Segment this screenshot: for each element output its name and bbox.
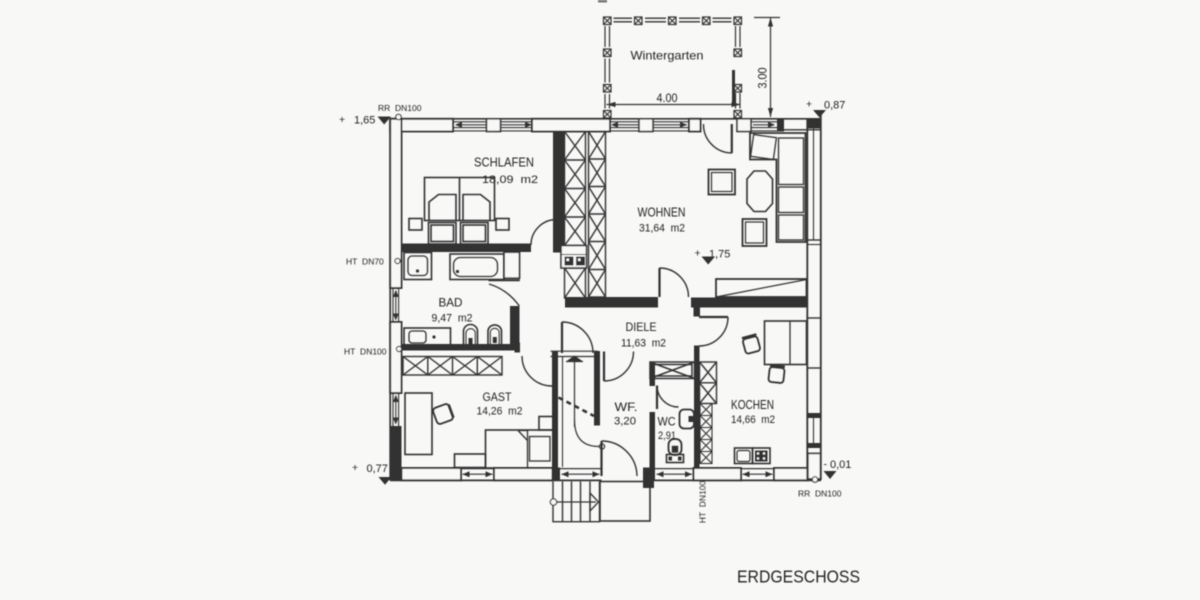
svg-text:11,63 m2: 11,63 m2: [621, 338, 666, 350]
svg-text:HT DN70: HT DN70: [346, 257, 384, 267]
svg-text:WOHNEN: WOHNEN: [638, 206, 686, 220]
svg-text:ERDGESCHOSS: ERDGESCHOSS: [737, 567, 860, 587]
svg-text:RR DN100: RR DN100: [378, 103, 422, 113]
svg-text:14,26 m2: 14,26 m2: [477, 406, 523, 418]
svg-text:GAST: GAST: [483, 390, 513, 404]
svg-text:14,66 m2: 14,66 m2: [731, 414, 775, 426]
svg-text:KOCHEN: KOCHEN: [731, 398, 774, 412]
svg-text:HT DN100: HT DN100: [698, 480, 708, 523]
svg-text:+: +: [695, 248, 701, 260]
svg-text:3,20: 3,20: [614, 416, 636, 428]
svg-text:+: +: [806, 99, 812, 111]
svg-text:0,01: 0,01: [830, 459, 851, 471]
svg-text:31,64 m2: 31,64 m2: [639, 223, 685, 235]
svg-text:9,47 m2: 9,47 m2: [432, 313, 473, 325]
svg-text:WF.: WF.: [615, 400, 638, 414]
svg-text:3.00: 3.00: [758, 68, 770, 89]
svg-text:WC: WC: [658, 415, 676, 429]
svg-text:DIELE: DIELE: [626, 320, 657, 334]
svg-text:+: +: [339, 114, 345, 126]
svg-text:2,91: 2,91: [658, 430, 676, 442]
svg-text:BAD: BAD: [439, 296, 463, 310]
svg-text:18,09 m2: 18,09 m2: [482, 174, 538, 186]
svg-text:HT DN100: HT DN100: [344, 347, 387, 357]
svg-text:0,87: 0,87: [824, 100, 845, 112]
svg-text:-: -: [824, 459, 828, 471]
svg-text:RR DN100: RR DN100: [798, 489, 842, 499]
svg-text:4.00: 4.00: [657, 93, 678, 105]
svg-text:0,77: 0,77: [367, 463, 388, 475]
svg-text:+: +: [352, 462, 358, 474]
svg-text:Wintergarten: Wintergarten: [631, 49, 704, 63]
svg-text:1,65: 1,65: [354, 115, 375, 127]
svg-text:SCHLAFEN: SCHLAFEN: [474, 156, 534, 170]
